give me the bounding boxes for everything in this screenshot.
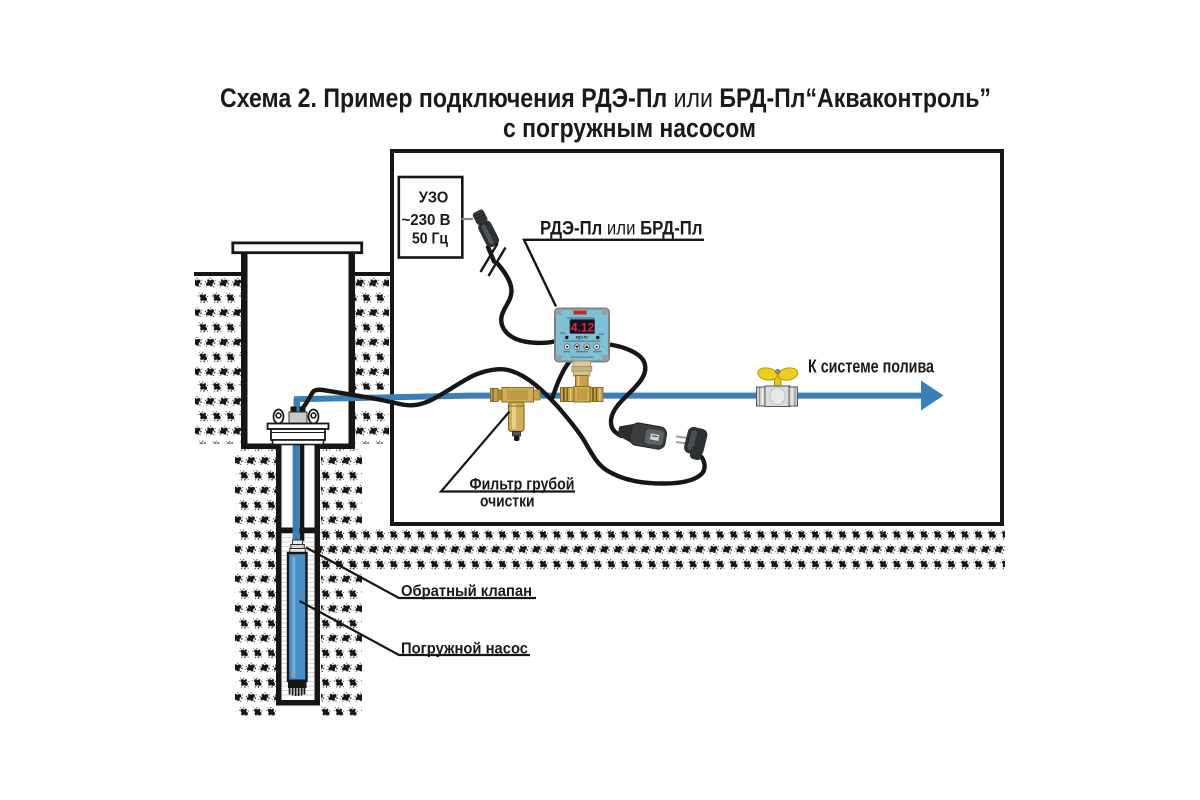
svg-text:УЗО: УЗО (419, 189, 449, 206)
svg-text:с погружным насосом: с погружным насосом (503, 113, 756, 143)
svg-text:50 Гц: 50 Гц (412, 231, 448, 248)
svg-text:К системе полива: К системе полива (808, 356, 935, 377)
svg-text:РДЭ-Пл или БРД-Пл: РДЭ-Пл или БРД-Пл (540, 218, 703, 240)
svg-text:Схема 2. Пример подключения РД: Схема 2. Пример подключения РДЭ-Пл или Б… (220, 83, 991, 113)
svg-text:~230 В: ~230 В (402, 212, 451, 229)
svg-text:4.12: 4.12 (571, 321, 595, 335)
svg-text:РДЭ-Пл: РДЭ-Пл (576, 336, 589, 340)
svg-text:очистки: очистки (480, 493, 535, 511)
